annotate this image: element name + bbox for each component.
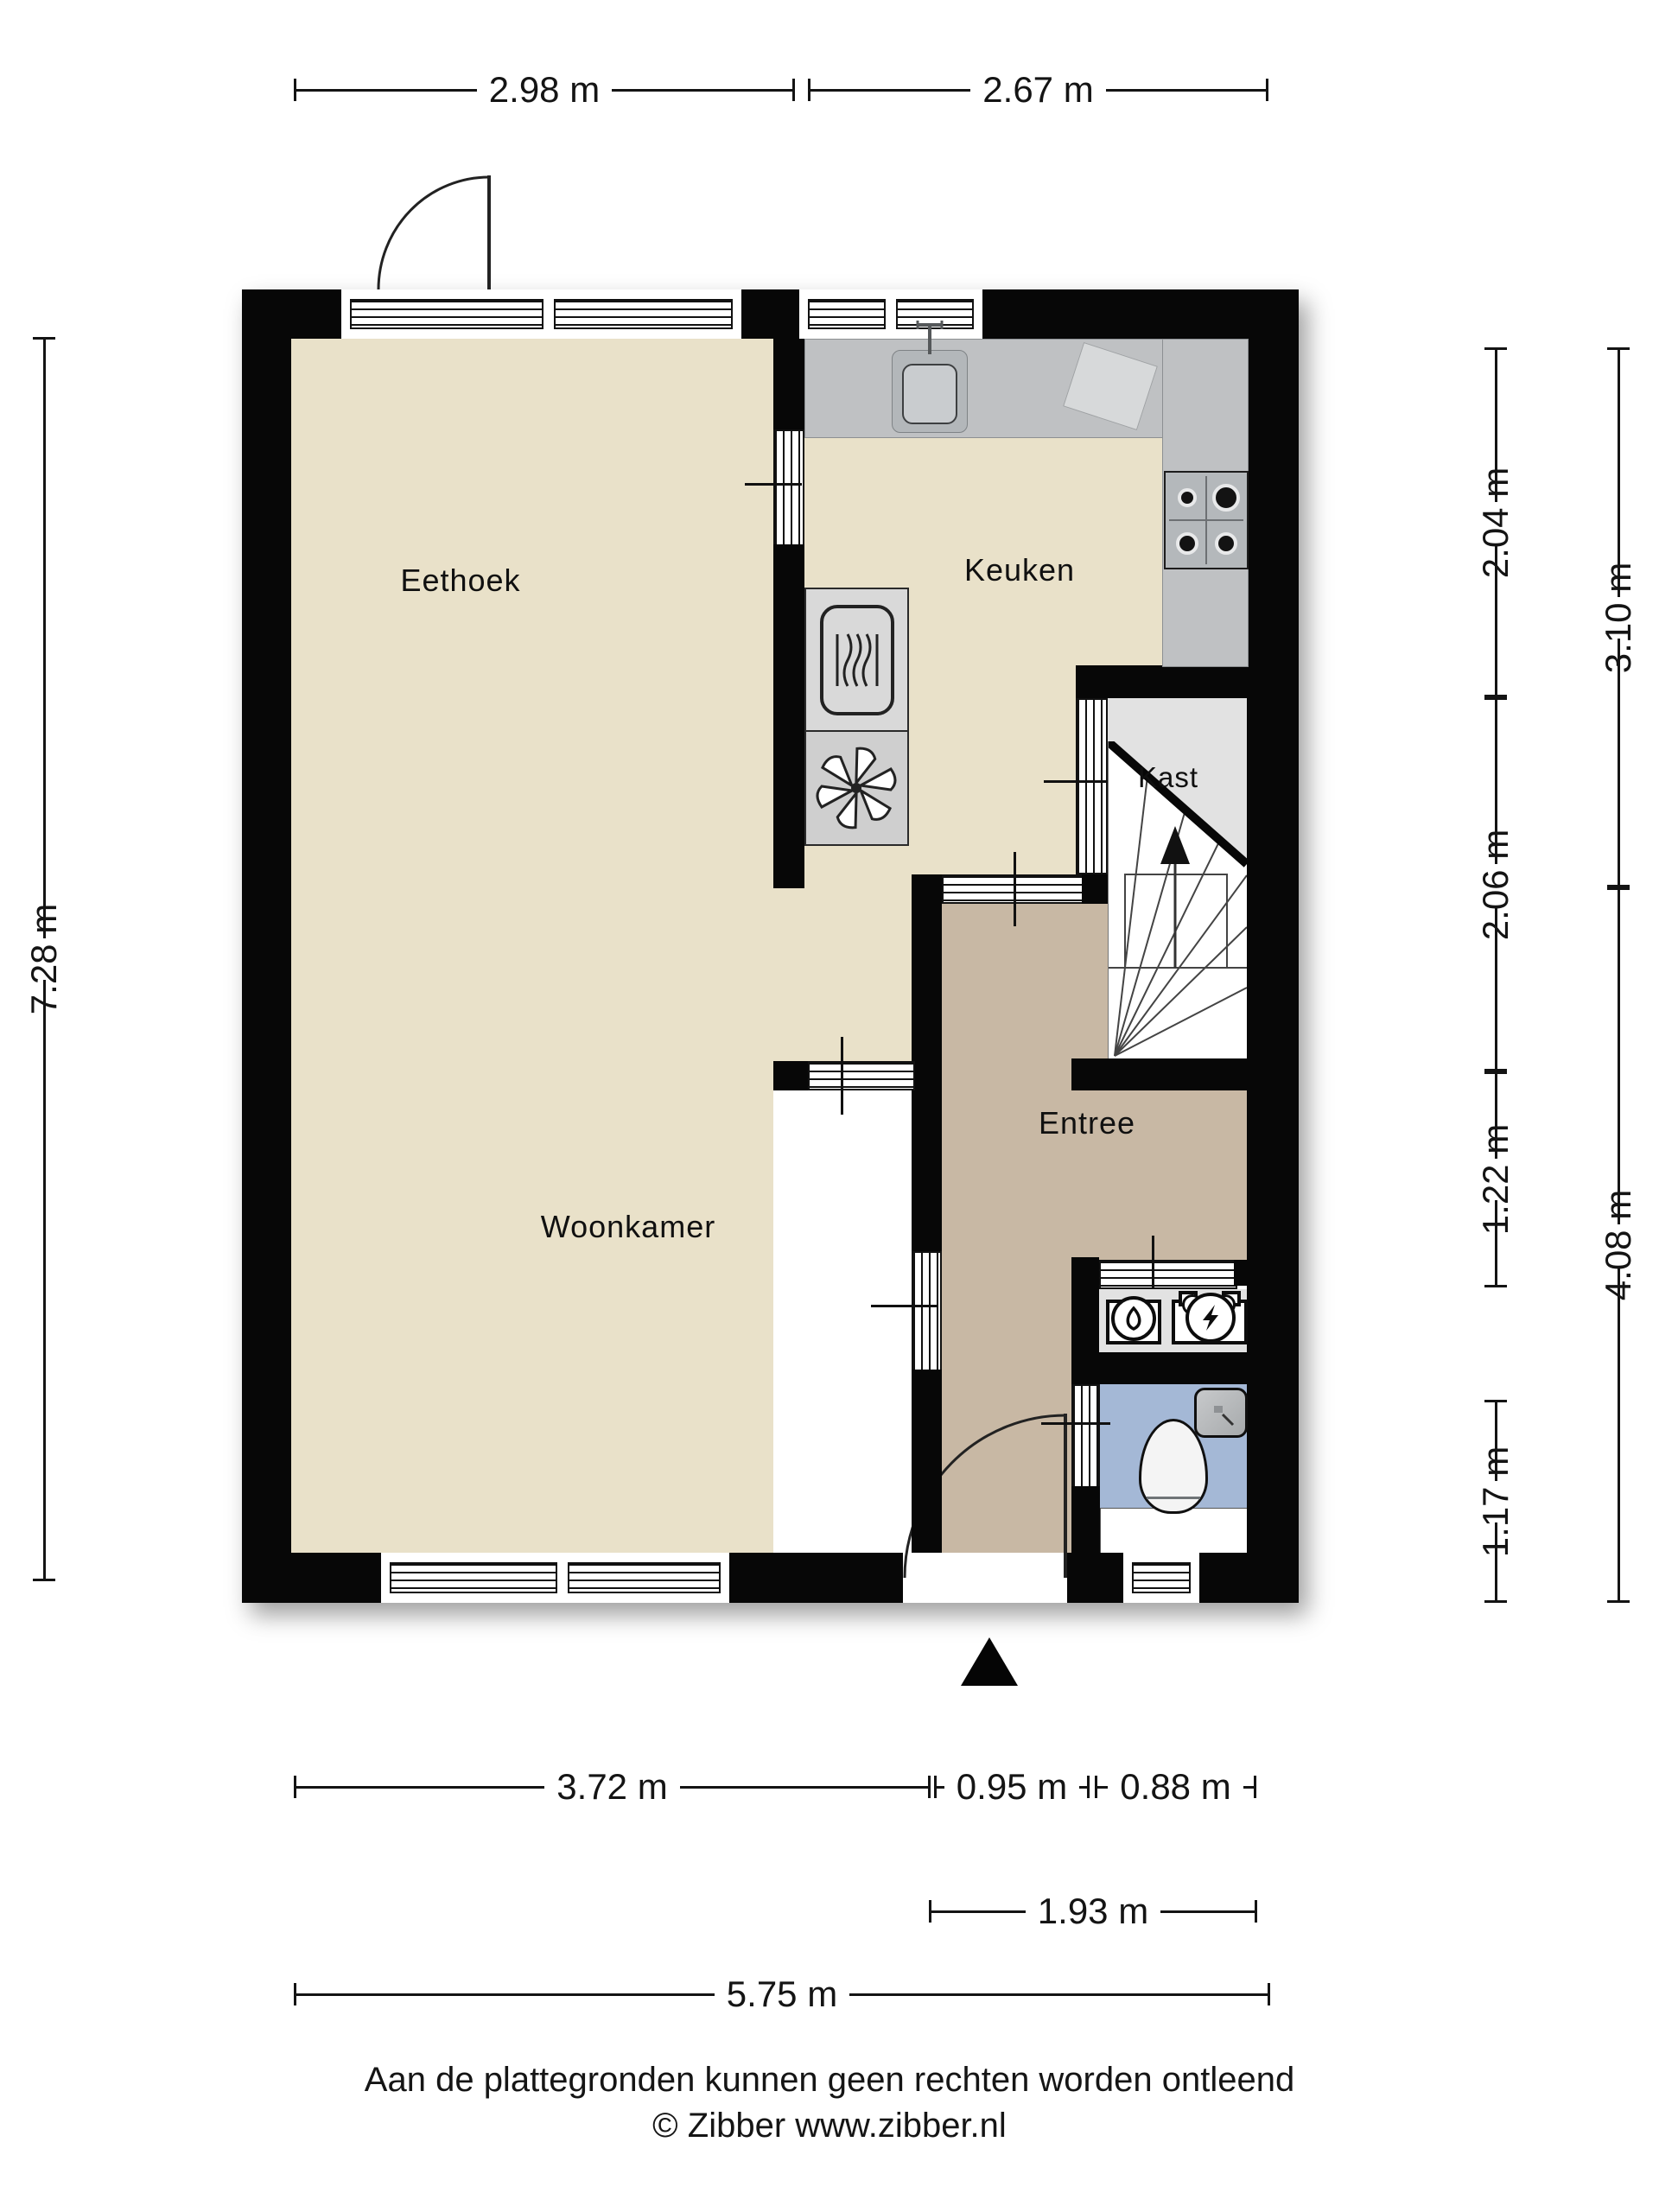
- wall-divider-eethoek-keuken-upper: [773, 339, 804, 429]
- window-eethoek-top: [341, 289, 741, 339]
- toilet-sill: [1100, 1508, 1249, 1554]
- dimension-top-keuken: 2.67 m: [808, 73, 1268, 107]
- wall-stub-passage: [773, 1061, 808, 1090]
- dimension-right-toilet-depth: 1.17 m: [1476, 1400, 1516, 1603]
- window-tick: [745, 483, 802, 486]
- dimension-bottom-total: 5.75 m: [294, 1977, 1270, 2012]
- dimension-right-outer-upper: 3.10 m: [1599, 347, 1638, 887]
- dimension-label: 2.04 m: [1475, 467, 1516, 577]
- electric-meter-dial: [1185, 1293, 1236, 1343]
- interior-window-eethoek-keuken: [773, 429, 804, 548]
- oven-icon: [804, 588, 909, 734]
- floorplan-page: Eethoek Keuken Kast Entree Woonkamer 2.9…: [0, 0, 1659, 2212]
- wall-divider-woonkamer-entree-upper: [912, 874, 942, 1251]
- room-label-entree: Entree: [1039, 1105, 1135, 1141]
- window-mullion: [884, 299, 898, 329]
- window-tick: [841, 1037, 843, 1115]
- window-tick: [1152, 1236, 1154, 1289]
- stove-icon: [1164, 471, 1249, 569]
- window-woonkamer-bottom: [381, 1553, 729, 1603]
- dimension-label: 5.75 m: [715, 1974, 849, 2015]
- dimension-label: 3.10 m: [1598, 562, 1639, 672]
- dimension-label: 2.06 m: [1475, 829, 1516, 939]
- window-mullion: [542, 299, 556, 329]
- water-drop-icon: [1115, 1300, 1153, 1338]
- toilet-seat-line: [1147, 1497, 1200, 1499]
- dimension-right-outer-lower: 4.08 m: [1599, 887, 1638, 1603]
- floor-entree-upper: [942, 904, 1108, 1058]
- wall-divider-eethoek-keuken-lower: [773, 544, 804, 888]
- window-tick: [871, 1305, 938, 1307]
- window-tick: [1044, 780, 1108, 783]
- wall-meterkast-bottom: [1071, 1352, 1247, 1384]
- room-label-woonkamer: Woonkamer: [541, 1209, 715, 1245]
- toilet-sink-icon: [1194, 1388, 1248, 1438]
- dimension-label: 1.17 m: [1475, 1446, 1516, 1556]
- window-mullion: [556, 1562, 569, 1593]
- dimension-label: 2.67 m: [970, 69, 1105, 111]
- window-keuken-top: [799, 289, 982, 339]
- dimension-label: 3.72 m: [544, 1766, 679, 1808]
- dimension-right-entree-segment: 1.22 m: [1476, 1071, 1516, 1287]
- dimension-bottom-entree-toilet: 1.93 m: [929, 1894, 1257, 1929]
- back-door-swing: [377, 175, 493, 291]
- wall-kast-top: [1076, 665, 1247, 698]
- footer-disclaimer: Aan de plattegronden kunnen geen rechten…: [0, 2061, 1659, 2100]
- extractor-fan-icon: [804, 730, 909, 846]
- room-label-eethoek: Eethoek: [400, 563, 520, 599]
- wall-exterior-right: [1247, 289, 1299, 1603]
- dimension-label: 1.93 m: [1026, 1891, 1160, 1932]
- footer-copyright: © Zibber www.zibber.nl: [0, 2107, 1659, 2145]
- interior-window-passage-woonkamer: [808, 1061, 915, 1090]
- dimension-right-keuken-depth: 2.04 m: [1476, 347, 1516, 697]
- room-label-keuken: Keuken: [964, 552, 1075, 588]
- dimension-label: 0.88 m: [1108, 1766, 1243, 1808]
- water-meter-dial: [1111, 1296, 1156, 1341]
- window-glazing: [350, 299, 733, 329]
- kitchen-sink-basin: [902, 364, 957, 424]
- dimension-bottom-woonkamer: 3.72 m: [294, 1770, 931, 1804]
- toilet-door: [1071, 1384, 1100, 1490]
- interior-window-woonkamer-entree: [912, 1251, 942, 1373]
- dimension-bottom-entree: 0.95 m: [934, 1770, 1090, 1804]
- entrance-arrow: [961, 1637, 1018, 1686]
- dimension-label: 1.22 m: [1475, 1124, 1516, 1235]
- floor-passage-gap: [773, 888, 804, 1061]
- window-tick: [1041, 1422, 1110, 1425]
- floor-eethoek-woonkamer: [291, 339, 773, 1553]
- dimension-top-eethoek: 2.98 m: [294, 73, 795, 107]
- dimension-label: 7.28 m: [23, 904, 65, 1014]
- wall-stairs-bottom: [1071, 1058, 1247, 1090]
- window-glazing: [1132, 1562, 1191, 1593]
- dimension-left-total: 7.28 m: [24, 337, 64, 1581]
- wall-exterior-left: [242, 289, 291, 1603]
- kitchen-faucet-icon: [912, 318, 947, 354]
- window-toilet-bottom: [1123, 1553, 1199, 1603]
- wall-divider-woonkamer-entree-lower: [912, 1370, 942, 1553]
- kast-door: [1076, 698, 1108, 874]
- window-glazing: [390, 1562, 721, 1593]
- wall-toilet-left-lower: [1071, 1486, 1100, 1553]
- window-tick: [1014, 852, 1016, 926]
- dimension-label: 2.98 m: [477, 69, 612, 111]
- window-glazing: [808, 299, 974, 329]
- wall-stub-keuken-entree: [1082, 871, 1108, 904]
- dimension-right-kast-stairs: 2.06 m: [1476, 697, 1516, 1071]
- room-label-kast: Kast: [1138, 761, 1198, 794]
- meterkast-door: [1099, 1260, 1237, 1289]
- dimension-label: 0.95 m: [944, 1766, 1079, 1808]
- dimension-bottom-toilet: 0.88 m: [1095, 1770, 1256, 1804]
- dimension-label: 4.08 m: [1598, 1190, 1639, 1300]
- lightning-bolt-icon: [1189, 1296, 1232, 1339]
- wall-meterkast-door-end: [1234, 1260, 1247, 1286]
- floor-keuken-passage: [804, 874, 912, 1061]
